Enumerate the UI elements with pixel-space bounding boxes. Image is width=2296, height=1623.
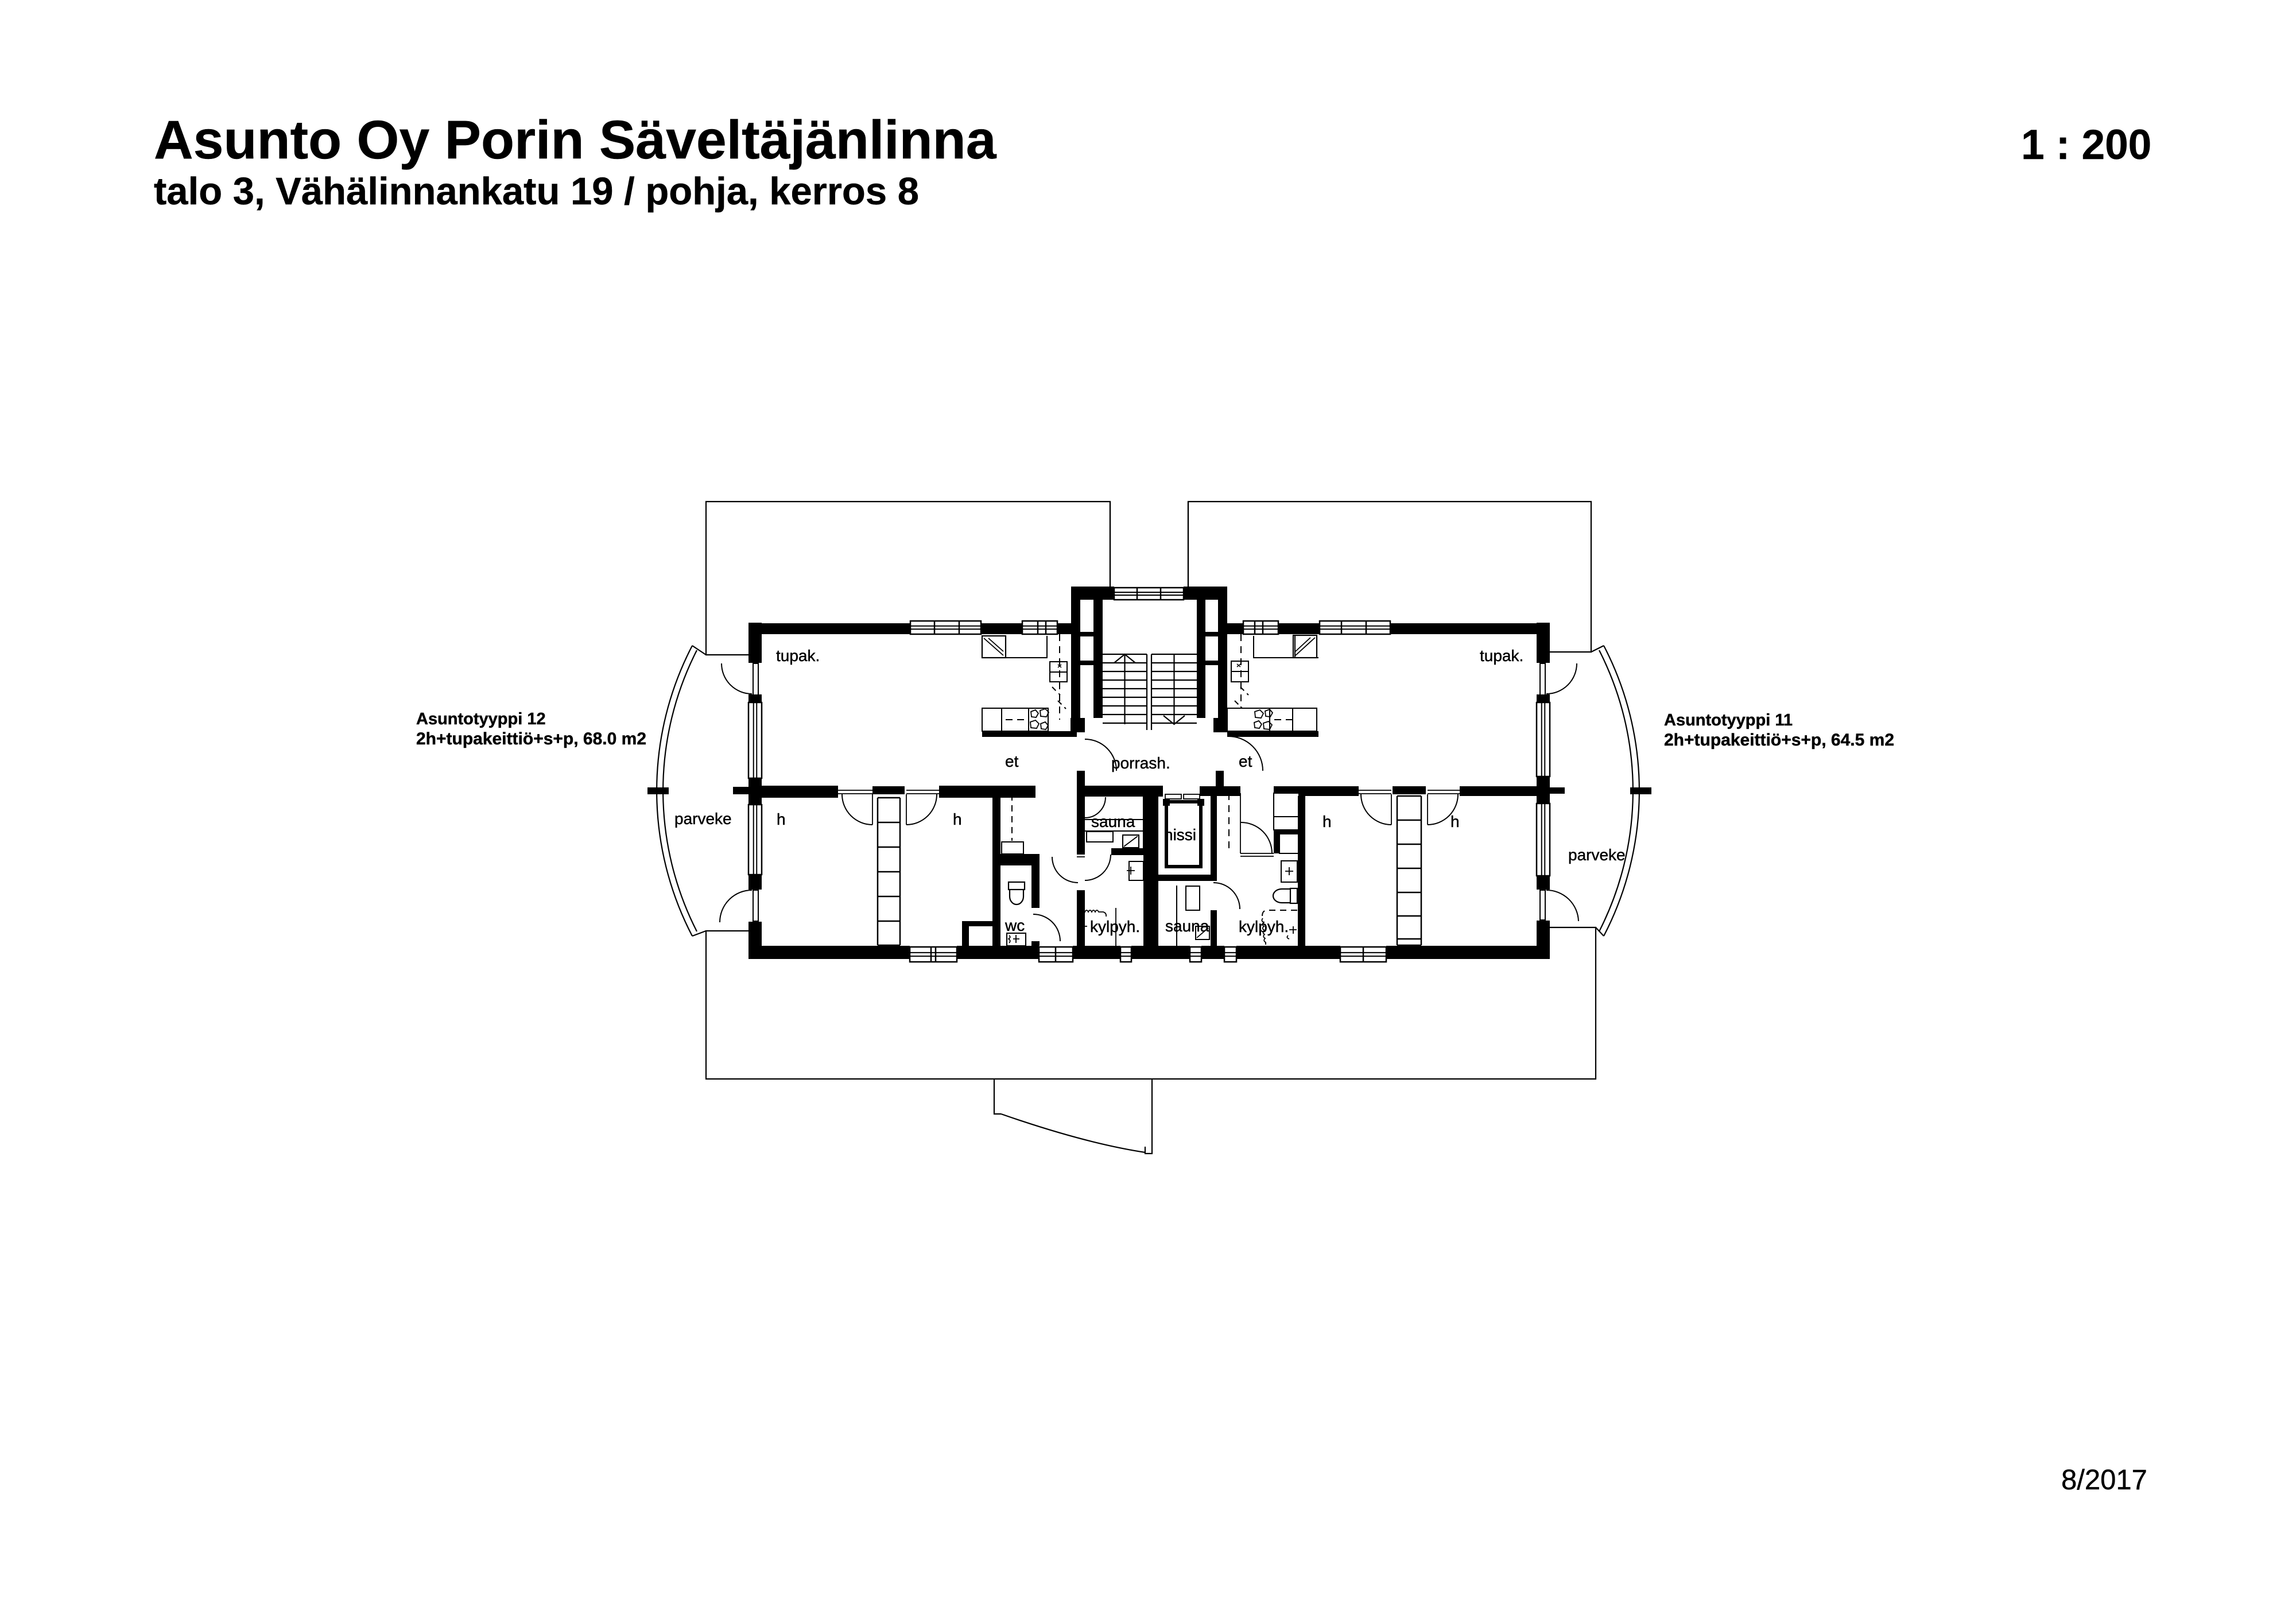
svg-text:Asuntotyyppi 12: Asuntotyyppi 12 xyxy=(416,710,546,728)
svg-text:wc: wc xyxy=(1004,917,1025,934)
svg-text:kylpyh.: kylpyh. xyxy=(1239,918,1289,935)
svg-text:tupak.: tupak. xyxy=(776,647,820,665)
svg-text:hissi: hissi xyxy=(1164,826,1196,844)
svg-text:porrash.: porrash. xyxy=(1111,754,1170,772)
svg-text:sauna: sauna xyxy=(1165,917,1209,935)
svg-text:8/2017: 8/2017 xyxy=(2061,1465,2147,1496)
svg-text:h: h xyxy=(1322,813,1332,830)
svg-text:et: et xyxy=(1005,752,1019,770)
svg-text:et: et xyxy=(1239,752,1252,770)
svg-text:h: h xyxy=(1450,813,1460,830)
svg-text:Asuntotyyppi 11: Asuntotyyppi 11 xyxy=(1664,711,1793,729)
svg-text:parveke: parveke xyxy=(1568,846,1626,864)
svg-text:Asunto Oy Porin Säveltäjänlinn: Asunto Oy Porin Säveltäjänlinna xyxy=(154,110,997,170)
svg-text:sauna: sauna xyxy=(1091,813,1135,830)
svg-text:h: h xyxy=(777,810,786,828)
svg-text:kylpyh.: kylpyh. xyxy=(1090,918,1140,935)
svg-text:2h+tupakeittiö+s+p, 68.0 m2: 2h+tupakeittiö+s+p, 68.0 m2 xyxy=(416,729,646,748)
svg-text:h: h xyxy=(953,810,962,828)
svg-text:parveke: parveke xyxy=(674,810,732,828)
svg-text:1 : 200: 1 : 200 xyxy=(2021,122,2151,168)
svg-text:2h+tupakeittiö+s+p, 64.5 m2: 2h+tupakeittiö+s+p, 64.5 m2 xyxy=(1664,731,1894,750)
svg-text:talo 3, Vähälinnankatu 19 / po: talo 3, Vähälinnankatu 19 / pohja, kerro… xyxy=(154,170,919,213)
svg-text:tupak.: tupak. xyxy=(1480,647,1523,665)
